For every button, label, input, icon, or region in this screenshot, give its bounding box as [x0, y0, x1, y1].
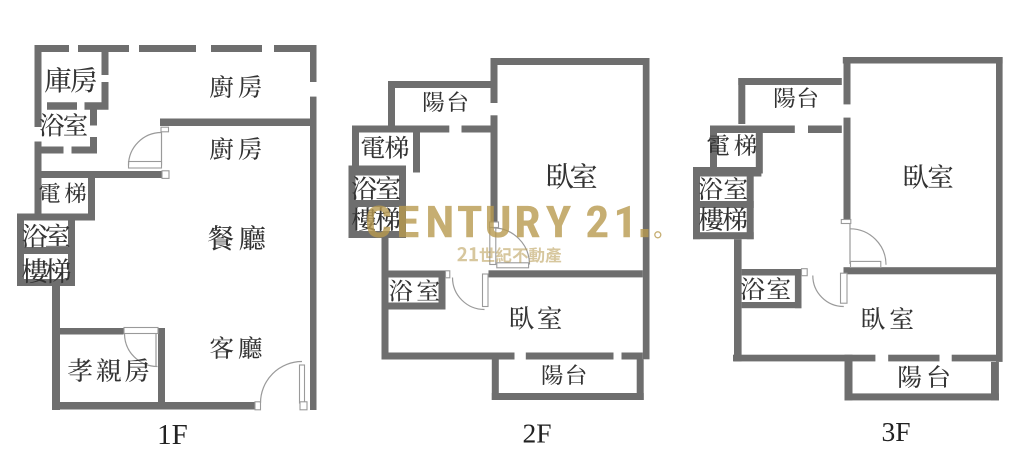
svg-text:1F: 1F — [157, 419, 188, 451]
svg-text:3F: 3F — [881, 416, 910, 447]
svg-text:2F: 2F — [522, 418, 551, 449]
